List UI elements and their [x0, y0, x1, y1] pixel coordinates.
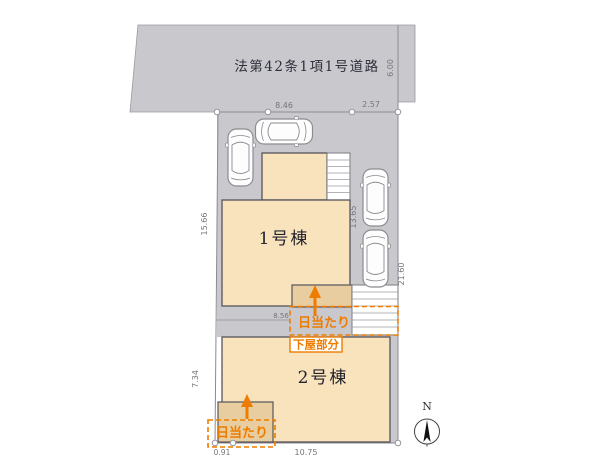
car-icon	[256, 117, 313, 147]
sunlight-label-1: 日当たり	[298, 315, 350, 331]
compass-north-label: N	[422, 400, 432, 413]
dim-left-upper: 15.66	[200, 213, 209, 236]
dim-middle-width: 8.56	[273, 312, 289, 320]
lower-roof-annotation: 下屋部分	[290, 337, 342, 352]
boundary-point	[265, 109, 271, 115]
car-icon	[361, 230, 391, 287]
dim-frontage-right: 2.57	[362, 100, 380, 109]
dim-left-lower: 7.34	[191, 370, 200, 388]
building-2-label: 2号棟	[298, 368, 349, 388]
dim-bottom-width: 10.75	[295, 448, 318, 457]
boundary-point	[349, 109, 355, 115]
dim-bottom-left: 0.91	[214, 448, 231, 457]
dim-frontage-left: 8.46	[275, 101, 293, 110]
boundary-point	[395, 109, 401, 115]
lower-roof-label: 下屋部分	[293, 338, 339, 352]
dim-road-width: 6.00	[386, 59, 395, 77]
site-plan-drawing: 法第42条1項1号道路 1号棟	[0, 0, 600, 474]
road-label: 法第42条1項1号道路	[234, 58, 379, 75]
dim-right-depth: 21.60	[397, 263, 406, 286]
building-1-label: 1号棟	[259, 229, 310, 249]
building-1-upper	[262, 153, 327, 200]
sunlight-label-2: 日当たり	[216, 425, 268, 441]
car-icon	[361, 169, 391, 226]
compass-needle-icon	[423, 420, 430, 442]
boundary-point	[214, 109, 220, 115]
building-1-lower-roof	[292, 285, 352, 307]
site-plan-canvas: 法第42条1項1号道路 1号棟	[0, 0, 600, 474]
compass: N	[415, 400, 440, 447]
site-stairs	[352, 285, 398, 335]
boundary-point	[230, 440, 236, 446]
dim-parking-depth: 13.65	[349, 206, 358, 229]
boundary-point	[395, 440, 401, 446]
boundary-point	[212, 440, 218, 446]
car-icon	[226, 129, 256, 186]
